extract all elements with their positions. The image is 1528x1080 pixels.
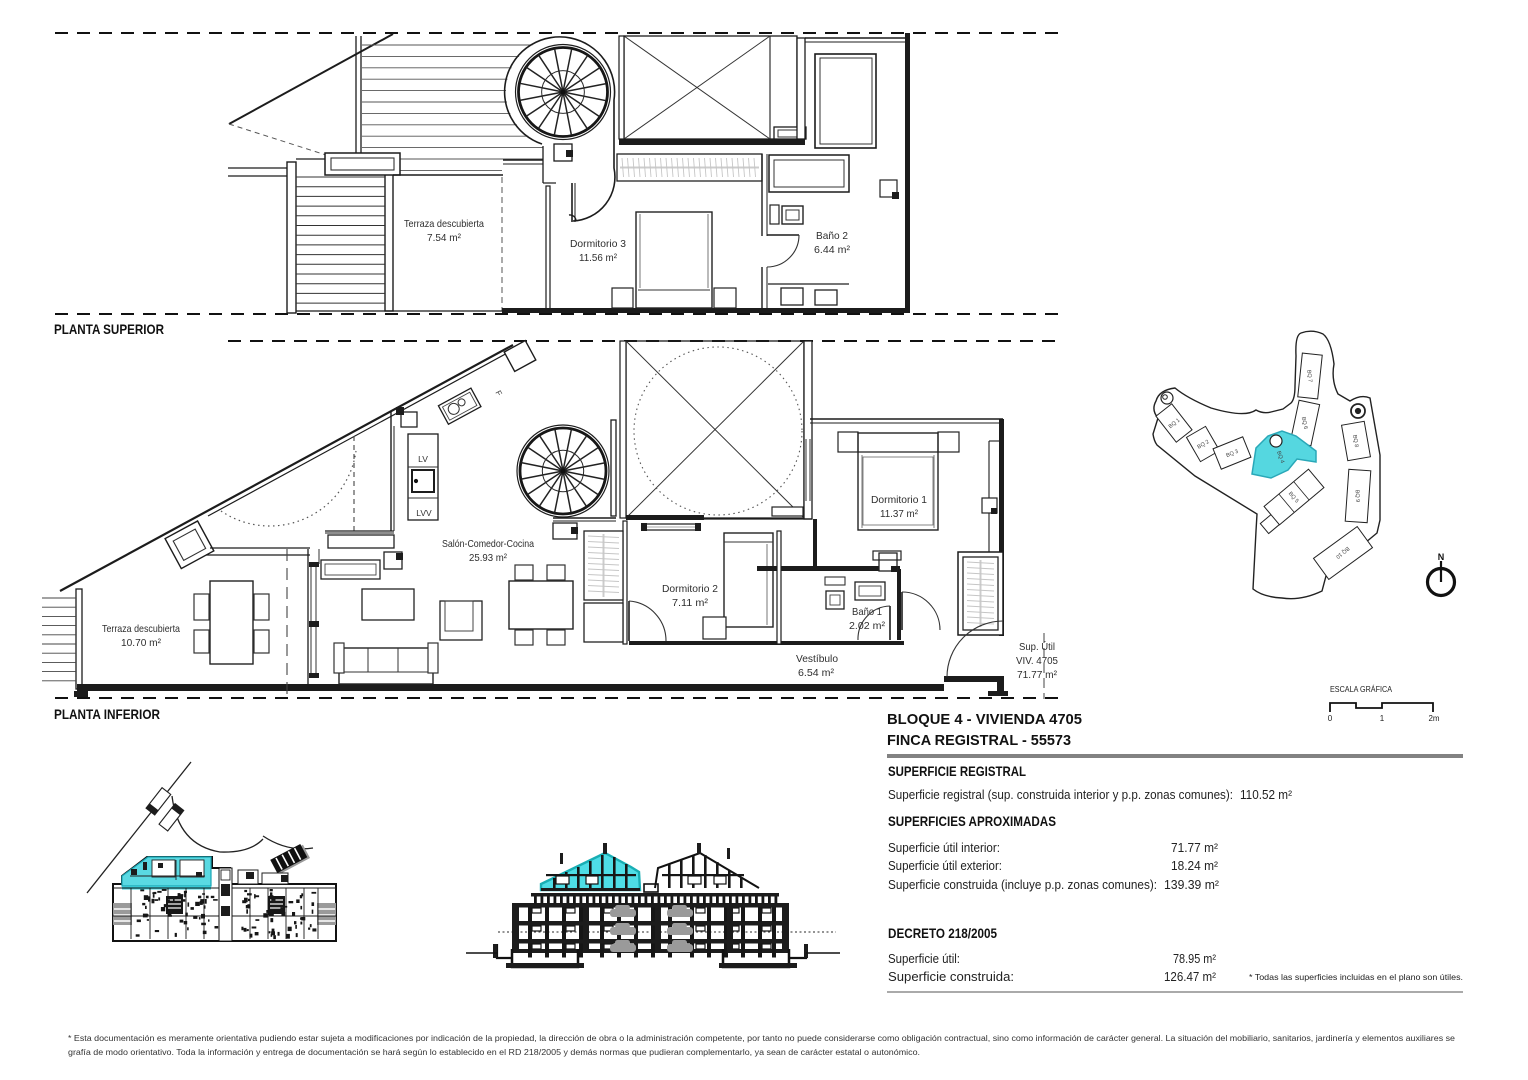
svg-text:LV: LV: [418, 454, 428, 464]
svg-text:Sup. Útil: Sup. Útil: [1019, 640, 1055, 653]
svg-text:PLANTA SUPERIOR: PLANTA SUPERIOR: [54, 321, 164, 337]
svg-text:7.11 m²: 7.11 m²: [672, 597, 709, 609]
svg-text:VIV. 4705: VIV. 4705: [1016, 656, 1058, 667]
svg-text:1: 1: [1380, 714, 1385, 723]
svg-text:* Esta documentación es merame: * Esta documentación es meramente orient…: [68, 1033, 1455, 1043]
svg-text:PLANTA INFERIOR: PLANTA INFERIOR: [54, 706, 160, 722]
svg-text:N: N: [1438, 552, 1445, 562]
svg-text:Salón-Comedor-Cocina: Salón-Comedor-Cocina: [442, 538, 534, 550]
svg-text:2m: 2m: [1428, 714, 1439, 723]
svg-text:71.77 m²: 71.77 m²: [1017, 670, 1058, 681]
svg-text:25.93 m²: 25.93 m²: [469, 552, 507, 564]
svg-text:Dormitorio 3: Dormitorio 3: [570, 238, 626, 250]
svg-text:FINCA REGISTRAL - 55573: FINCA REGISTRAL - 55573: [887, 732, 1071, 749]
svg-text:71.77 m²: 71.77 m²: [1171, 840, 1219, 855]
svg-text:Superficie construida:: Superficie construida:: [888, 969, 1014, 984]
svg-text:0: 0: [1328, 714, 1333, 723]
svg-text:2.02 m²: 2.02 m²: [849, 620, 885, 632]
svg-text:BQ 9: BQ 9: [1354, 490, 1361, 503]
svg-text:Terraza descubierta: Terraza descubierta: [404, 218, 484, 230]
svg-text:Terraza descubierta: Terraza descubierta: [102, 623, 180, 635]
svg-text:grafía de modo orientativo. To: grafía de modo orientativo. Toda la info…: [68, 1047, 920, 1057]
svg-text:SUPERFICIES APROXIMADAS: SUPERFICIES APROXIMADAS: [888, 813, 1056, 829]
svg-text:139.39 m²: 139.39 m²: [1164, 877, 1220, 892]
svg-text:Superficie útil exterior:: Superficie útil exterior:: [888, 858, 1002, 873]
svg-text:6.54 m²: 6.54 m²: [798, 667, 834, 679]
svg-text:LVV: LVV: [416, 508, 432, 518]
svg-text:126.47 m²: 126.47 m²: [1164, 969, 1217, 984]
svg-text:Baño 2: Baño 2: [816, 230, 848, 242]
svg-text:Superficie registral (sup. con: Superficie registral (sup. construida in…: [888, 787, 1233, 802]
svg-text:ESCALA GRÁFICA: ESCALA GRÁFICA: [1330, 685, 1393, 694]
svg-text:Superficie útil interior:: Superficie útil interior:: [888, 840, 1000, 855]
svg-text:Dormitorio 1: Dormitorio 1: [871, 494, 927, 506]
svg-text:6.44 m²: 6.44 m²: [814, 244, 850, 256]
svg-text:* Todas las superficies inclui: * Todas las superficies incluidas en el …: [1249, 972, 1463, 982]
svg-text:10.70 m²: 10.70 m²: [121, 637, 161, 649]
svg-text:Baño 1: Baño 1: [852, 606, 882, 618]
svg-text:110.52 m²: 110.52 m²: [1240, 787, 1293, 802]
svg-text:Dormitorio 2: Dormitorio 2: [662, 583, 718, 595]
svg-text:11.56 m²: 11.56 m²: [579, 252, 617, 264]
svg-text:Superficie construida (incluye: Superficie construida (incluye p.p. zona…: [888, 877, 1157, 892]
svg-text:7.54 m²: 7.54 m²: [427, 232, 461, 244]
svg-text:78.95 m²: 78.95 m²: [1173, 951, 1217, 966]
svg-text:Vestíbulo: Vestíbulo: [796, 653, 838, 665]
svg-text:SUPERFICIE REGISTRAL: SUPERFICIE REGISTRAL: [888, 763, 1026, 779]
svg-text:11.37 m²: 11.37 m²: [880, 508, 918, 520]
svg-text:BLOQUE 4 - VIVIENDA 4705: BLOQUE 4 - VIVIENDA 4705: [887, 711, 1082, 728]
svg-text:Superficie útil:: Superficie útil:: [888, 951, 960, 966]
svg-text:DECRETO 218/2005: DECRETO 218/2005: [888, 925, 997, 941]
svg-text:18.24 m²: 18.24 m²: [1171, 858, 1219, 873]
